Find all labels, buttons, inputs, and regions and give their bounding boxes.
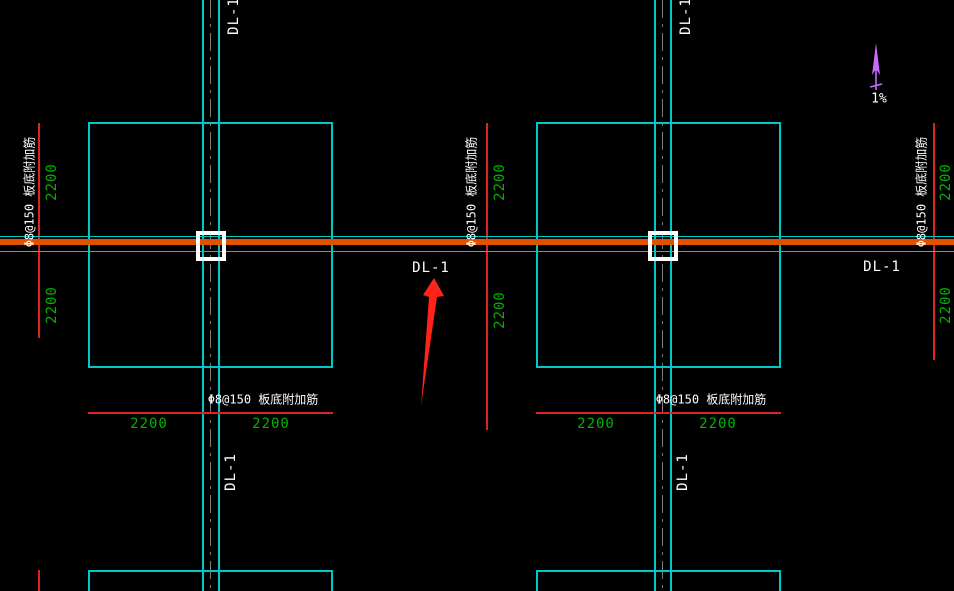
annotation-overlay [0,0,954,591]
cad-canvas[interactable]: 2200 2200 2200 2200 2200 2200 2200 2200 … [0,0,954,591]
slope-arrow-icon [870,43,882,90]
pointer-arrow-icon [421,278,444,406]
